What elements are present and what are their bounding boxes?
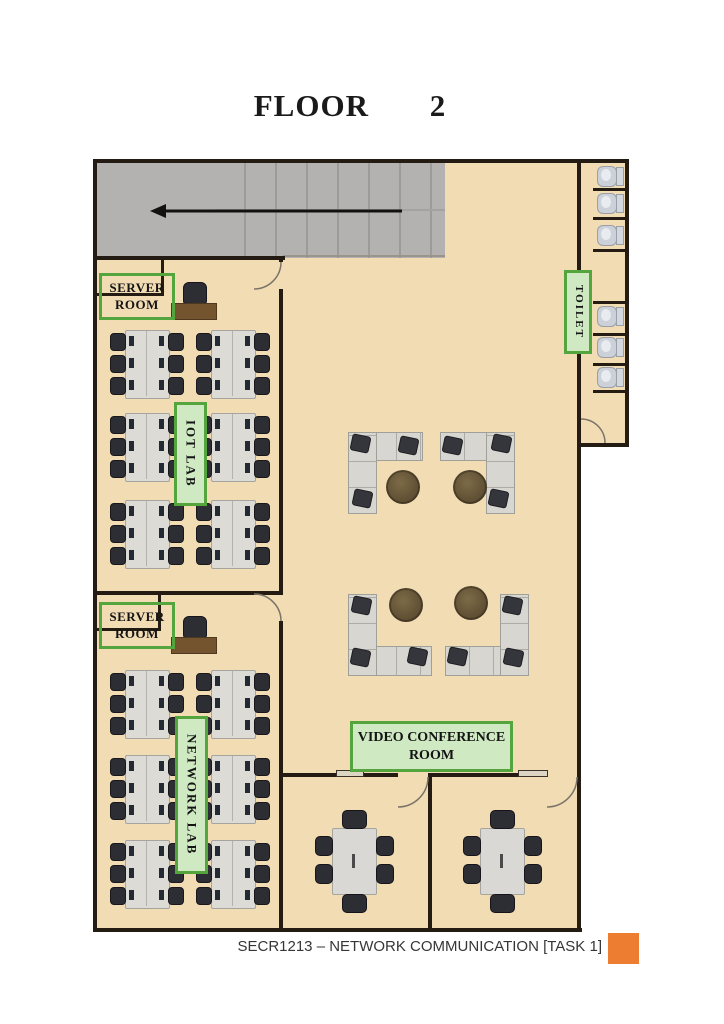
toilet-fixture [597, 367, 623, 386]
footer-caption: SECR1213 – NETWORK COMMUNICATION [TASK 1… [237, 938, 602, 955]
monitor [129, 805, 134, 815]
chair [196, 377, 212, 395]
chair [342, 810, 367, 829]
desk-cluster [110, 500, 183, 567]
monitor [245, 890, 250, 900]
monitor [129, 380, 134, 390]
monitor [215, 805, 220, 815]
monitor [215, 550, 220, 560]
monitor [245, 676, 250, 686]
chair [490, 810, 515, 829]
chair [315, 836, 333, 856]
chair [254, 843, 270, 861]
chair [196, 887, 212, 905]
chair [110, 355, 126, 373]
desk-table-divider [232, 331, 233, 396]
chair [254, 865, 270, 883]
toilet-fixture [597, 166, 623, 185]
monitor [215, 441, 220, 451]
monitor [129, 506, 134, 516]
chair [254, 503, 270, 521]
chair [254, 438, 270, 456]
monitor [159, 463, 164, 473]
sofa-pillow [349, 433, 371, 454]
label-line: SERVER [109, 609, 164, 625]
label-server-room-1: SERVER ROOM [99, 273, 175, 320]
toilet-tank [616, 307, 624, 326]
chair [168, 695, 184, 713]
monitor [245, 358, 250, 368]
conference-set [315, 810, 392, 911]
stair-mid-line [215, 209, 445, 211]
monitor [159, 506, 164, 516]
monitor [129, 419, 134, 429]
label-toilet: TOILET [564, 270, 592, 354]
chair [254, 355, 270, 373]
monitor [245, 805, 250, 815]
monitor [159, 676, 164, 686]
chair [342, 894, 367, 913]
monitor [129, 846, 134, 856]
chair [110, 547, 126, 565]
monitor [159, 720, 164, 730]
monitor [245, 698, 250, 708]
monitor [245, 720, 250, 730]
stair-treads-upper [215, 163, 445, 209]
chair [376, 864, 394, 884]
desk-table-divider [146, 501, 147, 566]
monitor [159, 336, 164, 346]
monitor [215, 506, 220, 516]
monitor [129, 336, 134, 346]
chair [254, 673, 270, 691]
chair [254, 525, 270, 543]
chair [168, 355, 184, 373]
chair [463, 864, 481, 884]
monitor [159, 868, 164, 878]
desk-cluster [196, 500, 269, 567]
toilet-fixture [597, 306, 623, 325]
chair [254, 695, 270, 713]
desk-table-divider [232, 501, 233, 566]
monitor [159, 441, 164, 451]
label-iot-lab: IOT LAB [174, 402, 207, 506]
chair [168, 887, 184, 905]
monitor [159, 550, 164, 560]
monitor [215, 783, 220, 793]
sofa-pillow [502, 647, 524, 668]
stall-divider [593, 301, 625, 304]
toilet-fixture [597, 337, 623, 356]
stair-edge-line [283, 255, 445, 257]
monitor [215, 336, 220, 346]
monitor [215, 698, 220, 708]
table-center-mark [352, 854, 355, 868]
sofa-pillow [350, 595, 372, 616]
monitor [159, 761, 164, 771]
chair [254, 887, 270, 905]
chair [254, 547, 270, 565]
door-leaf [518, 770, 548, 777]
sofa-pillow [406, 646, 428, 667]
monitor [215, 868, 220, 878]
stall-divider [593, 249, 625, 252]
wall-toilet-bottom [577, 443, 629, 447]
chair [254, 333, 270, 351]
label-text: IOT LAB [182, 420, 198, 488]
wall-labs-right-seg2 [279, 289, 283, 593]
desk-table-divider [146, 331, 147, 396]
chair [110, 438, 126, 456]
label-line: ROOM [109, 626, 164, 642]
monitor [245, 506, 250, 516]
label-text: TOILET [571, 285, 585, 339]
desk-cluster [110, 755, 183, 822]
monitor [129, 868, 134, 878]
monitor [129, 698, 134, 708]
desk-table-divider [146, 671, 147, 736]
desk-table-divider [146, 841, 147, 906]
monitor [129, 890, 134, 900]
monitor [245, 846, 250, 856]
chair [254, 802, 270, 820]
chair [463, 836, 481, 856]
chair [110, 717, 126, 735]
chair [110, 673, 126, 691]
monitor [245, 761, 250, 771]
monitor [215, 890, 220, 900]
chair [196, 673, 212, 691]
sofa-pillow [487, 488, 509, 509]
monitor [215, 761, 220, 771]
chair [254, 416, 270, 434]
monitor [129, 463, 134, 473]
stall-divider [593, 363, 625, 366]
desk-table-divider [232, 756, 233, 821]
toilet-tank [616, 338, 624, 357]
chair [524, 864, 542, 884]
monitor [129, 761, 134, 771]
monitor [159, 783, 164, 793]
stall-divider [593, 333, 625, 336]
chair [110, 843, 126, 861]
wall-conference-divider [428, 777, 432, 928]
desk-table-divider [232, 671, 233, 736]
monitor [215, 380, 220, 390]
toilet-tank [616, 226, 624, 245]
toilet-tank [616, 167, 624, 186]
label-video-conference-room: VIDEO CONFERENCE ROOM [350, 721, 513, 772]
stall-divider [593, 390, 625, 393]
desk-table-divider [232, 841, 233, 906]
chair [196, 355, 212, 373]
chair [254, 758, 270, 776]
wall-labs-right-seg1 [279, 256, 283, 262]
chair [376, 836, 394, 856]
toilet-bowl-inner [601, 309, 611, 321]
toilet-bowl-inner [601, 228, 611, 240]
chair [168, 333, 184, 351]
desk-cluster [196, 330, 269, 397]
chair [196, 695, 212, 713]
monitor [215, 358, 220, 368]
monitor [159, 419, 164, 429]
monitor [245, 868, 250, 878]
desk-table-divider [232, 414, 233, 479]
monitor [245, 419, 250, 429]
wall-bottom [93, 928, 582, 932]
monitor [129, 441, 134, 451]
wall-right-lower [577, 443, 581, 932]
chair [110, 780, 126, 798]
chair [196, 333, 212, 351]
round-table [386, 470, 420, 504]
monitor [245, 783, 250, 793]
teacher-desk [171, 637, 217, 654]
chair [168, 525, 184, 543]
monitor [159, 846, 164, 856]
table-center-mark [500, 854, 503, 868]
monitor [245, 441, 250, 451]
chair [524, 836, 542, 856]
wall-labs-top [93, 256, 285, 260]
chair [196, 547, 212, 565]
chair [110, 416, 126, 434]
wall-top [93, 159, 629, 163]
monitor [129, 783, 134, 793]
stall-divider [593, 217, 625, 220]
sofa-pillow [351, 488, 373, 509]
monitor [129, 358, 134, 368]
label-server-room-2: SERVER ROOM [99, 602, 175, 649]
monitor [129, 550, 134, 560]
monitor [215, 528, 220, 538]
desk-table-divider [146, 756, 147, 821]
toilet-fixture [597, 193, 623, 212]
monitor [215, 720, 220, 730]
monitor [159, 698, 164, 708]
monitor [215, 846, 220, 856]
monitor [159, 890, 164, 900]
desk-cluster [110, 840, 183, 907]
toilet-bowl-inner [601, 370, 611, 382]
monitor [159, 528, 164, 538]
monitor [129, 676, 134, 686]
desk-cluster [110, 330, 183, 397]
sofa-pillow [441, 435, 463, 456]
monitor [245, 463, 250, 473]
floor-plan: FLOOR 2 SERVER ROOM SERVER ROOM I [0, 0, 724, 1024]
sofa-pillow [446, 646, 468, 667]
toilet-bowl-inner [601, 196, 611, 208]
monitor [159, 358, 164, 368]
teacher-chair [183, 282, 207, 305]
accent-square [608, 933, 639, 964]
chair [110, 887, 126, 905]
monitor [245, 550, 250, 560]
chair [110, 525, 126, 543]
round-table [453, 470, 487, 504]
chair [110, 460, 126, 478]
sofa-pillow [490, 433, 512, 454]
page-title: FLOOR 2 [170, 88, 530, 124]
sofa-pillow [349, 647, 371, 668]
chair [254, 780, 270, 798]
chair [110, 758, 126, 776]
chair [110, 865, 126, 883]
label-network-lab: NETWORK LAB [175, 716, 208, 874]
stall-divider [593, 188, 625, 191]
label-line: ROOM [358, 747, 505, 765]
monitor [215, 463, 220, 473]
teacher-desk [171, 303, 217, 320]
toilet-tank [616, 194, 624, 213]
label-text: NETWORK LAB [183, 734, 199, 855]
conference-set [463, 810, 540, 911]
chair [315, 864, 333, 884]
chair [490, 894, 515, 913]
round-table [454, 586, 488, 620]
chair [168, 673, 184, 691]
stair-treads-lower [215, 211, 445, 258]
monitor [245, 336, 250, 346]
monitor [245, 380, 250, 390]
toilet-bowl-inner [601, 340, 611, 352]
wall-toilet-outer [625, 159, 629, 447]
desk-cluster [110, 670, 183, 737]
sofa-pillow [501, 595, 523, 616]
chair [196, 525, 212, 543]
sofa-pillow [397, 435, 419, 456]
chair [254, 717, 270, 735]
chair [254, 377, 270, 395]
monitor [215, 676, 220, 686]
chair [168, 547, 184, 565]
chair [254, 460, 270, 478]
chair [110, 802, 126, 820]
label-line: ROOM [109, 297, 164, 313]
chair [168, 377, 184, 395]
desk-cluster [110, 413, 183, 480]
chair [110, 377, 126, 395]
desk-table-divider [146, 414, 147, 479]
wall-labs-divider [93, 591, 283, 595]
toilet-fixture [597, 225, 623, 244]
round-table [389, 588, 423, 622]
monitor [245, 528, 250, 538]
chair [110, 333, 126, 351]
toilet-tank [616, 368, 624, 387]
monitor [159, 380, 164, 390]
monitor [129, 720, 134, 730]
monitor [129, 528, 134, 538]
teacher-chair [183, 616, 207, 639]
label-line: VIDEO CONFERENCE [358, 729, 505, 747]
toilet-bowl-inner [601, 169, 611, 181]
label-line: SERVER [109, 280, 164, 296]
monitor [215, 419, 220, 429]
chair [110, 503, 126, 521]
wall-left [93, 159, 97, 932]
monitor [159, 805, 164, 815]
chair [110, 695, 126, 713]
